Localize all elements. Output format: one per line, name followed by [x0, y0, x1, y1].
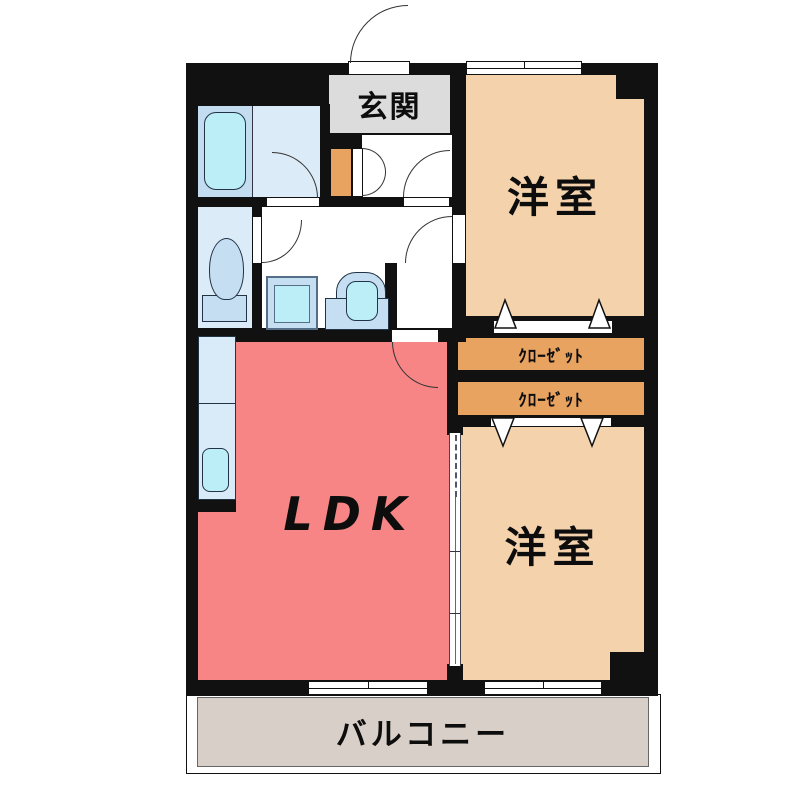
entrance-label: 玄関 [327, 86, 452, 122]
closet-top-label: ｸﾛｰｾﾞｯﾄ [458, 338, 644, 370]
window-glass-line [467, 68, 581, 69]
western-room-bottom-label: 洋室 [461, 518, 644, 570]
window-bottom-room [484, 681, 602, 695]
window-tick [543, 682, 544, 688]
western-room-top-label: 洋室 [466, 168, 644, 220]
wall [320, 135, 362, 148]
room-top-door-swing [405, 216, 452, 263]
floor-plan: 玄関 洋室 洋室 ｸﾛｰｾﾞｯﾄ ｸﾛｰｾﾞｯﾄ LDK バルコニー [0, 0, 800, 800]
window-tick [368, 682, 369, 688]
wall [447, 664, 463, 684]
storage-door-swing-upper [362, 148, 386, 172]
closet-bottom-label: ｸﾛｰｾﾞｯﾄ [458, 382, 644, 415]
closet-top-opening [493, 320, 613, 334]
balcony-label: バルコニー [197, 710, 649, 752]
wall [186, 63, 327, 106]
sliding-door-partition [449, 433, 461, 666]
washroom-door-leaf [403, 197, 450, 207]
toilet-door-leaf [252, 216, 262, 264]
room-top-door-opening [452, 214, 466, 264]
washroom-door-swing [403, 150, 450, 197]
window-top [466, 61, 582, 75]
wall [452, 370, 658, 382]
entrance-door-swing [350, 5, 408, 63]
sliding-door-handle [450, 613, 460, 614]
wall [186, 500, 236, 512]
window-glass-line [485, 688, 601, 689]
ldk-label: LDK [230, 482, 470, 546]
wall [327, 63, 348, 75]
corner-pillar [616, 75, 644, 99]
wall [447, 328, 458, 427]
bathroom-door-leaf [266, 197, 320, 207]
ldk-door-opening [392, 330, 438, 342]
toilet-door-swing [262, 220, 302, 263]
closet-bottom-opening [490, 417, 612, 427]
toilet-bowl [209, 238, 244, 300]
window-tick [524, 62, 525, 68]
shoe-cabinet [330, 148, 352, 197]
wall [447, 415, 463, 435]
washbasin-bowl [346, 281, 378, 321]
kitchen-sink [202, 448, 229, 492]
window-glass-line [309, 688, 427, 689]
window-ldk [308, 681, 428, 695]
sliding-door-handle [450, 551, 460, 552]
wall [186, 63, 198, 696]
corner-pillar [610, 652, 644, 682]
bathtub [204, 112, 246, 190]
wall [452, 63, 466, 330]
washing-machine-drum [274, 285, 310, 323]
kitchen-counter-divider [199, 403, 235, 404]
entrance-door-leaf [348, 61, 410, 75]
storage-door-swing-lower [362, 172, 386, 196]
